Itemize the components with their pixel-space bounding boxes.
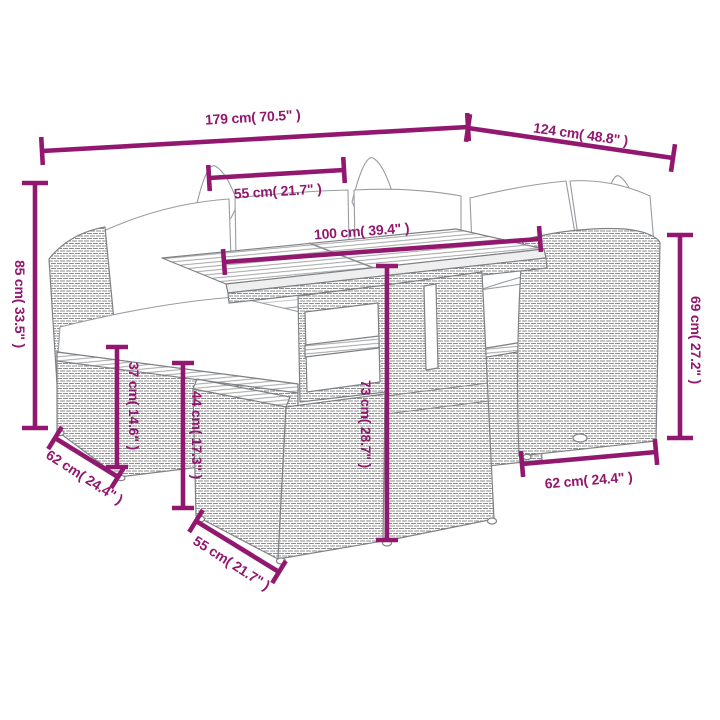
dim-label-armrest-height: 69 cm( 27.2" ) — [688, 296, 704, 384]
dim-tick-end — [539, 226, 541, 252]
dim-sofa-height: 85 cm( 33.5" ) — [12, 183, 48, 428]
dim-tick-end — [671, 144, 675, 172]
ottoman-front-face — [193, 389, 286, 559]
furniture-diagram-canvas: 179 cm( 70.5" )124 cm( 48.8" )55 cm( 21.… — [0, 0, 720, 720]
table-foot — [488, 518, 497, 524]
table-base-post — [424, 284, 438, 370]
dim-label-total-width: 179 cm( 70.5" ) — [205, 106, 301, 127]
dim-total-width: 179 cm( 70.5" ) — [41, 106, 469, 165]
armrest-hole — [573, 434, 587, 442]
dim-label-ottoman-height: 44 cm( 17.3" ) — [189, 391, 205, 479]
dim-label-table-height: 73 cm( 28.7" ) — [358, 380, 374, 468]
dim-tick-start — [223, 249, 225, 275]
dim-tick-start — [41, 137, 43, 165]
dim-line — [209, 170, 344, 178]
dim-tick-end — [343, 157, 345, 183]
dim-tick-start — [48, 427, 62, 449]
product-dimension-diagram: 179 cm( 70.5" )124 cm( 48.8" )55 cm( 21.… — [0, 0, 720, 720]
dim-total-depth: 124 cm( 48.8" ) — [466, 114, 675, 172]
table-base-right — [385, 272, 494, 541]
dim-tick-end — [655, 439, 657, 465]
dim-line — [42, 127, 468, 151]
furniture-set — [49, 158, 660, 564]
dim-label-sofa-height: 85 cm( 33.5" ) — [12, 260, 28, 348]
dim-tick-start — [208, 165, 210, 191]
dim-tick-start — [521, 451, 523, 477]
dim-label-sofa-depth-right: 62 cm( 24.4" ) — [544, 469, 633, 492]
sofa-foot — [523, 454, 531, 459]
dim-label-base-height: 37 cm( 14.6" ) — [126, 362, 142, 450]
dim-armrest-height: 69 cm( 27.2" ) — [667, 235, 704, 438]
